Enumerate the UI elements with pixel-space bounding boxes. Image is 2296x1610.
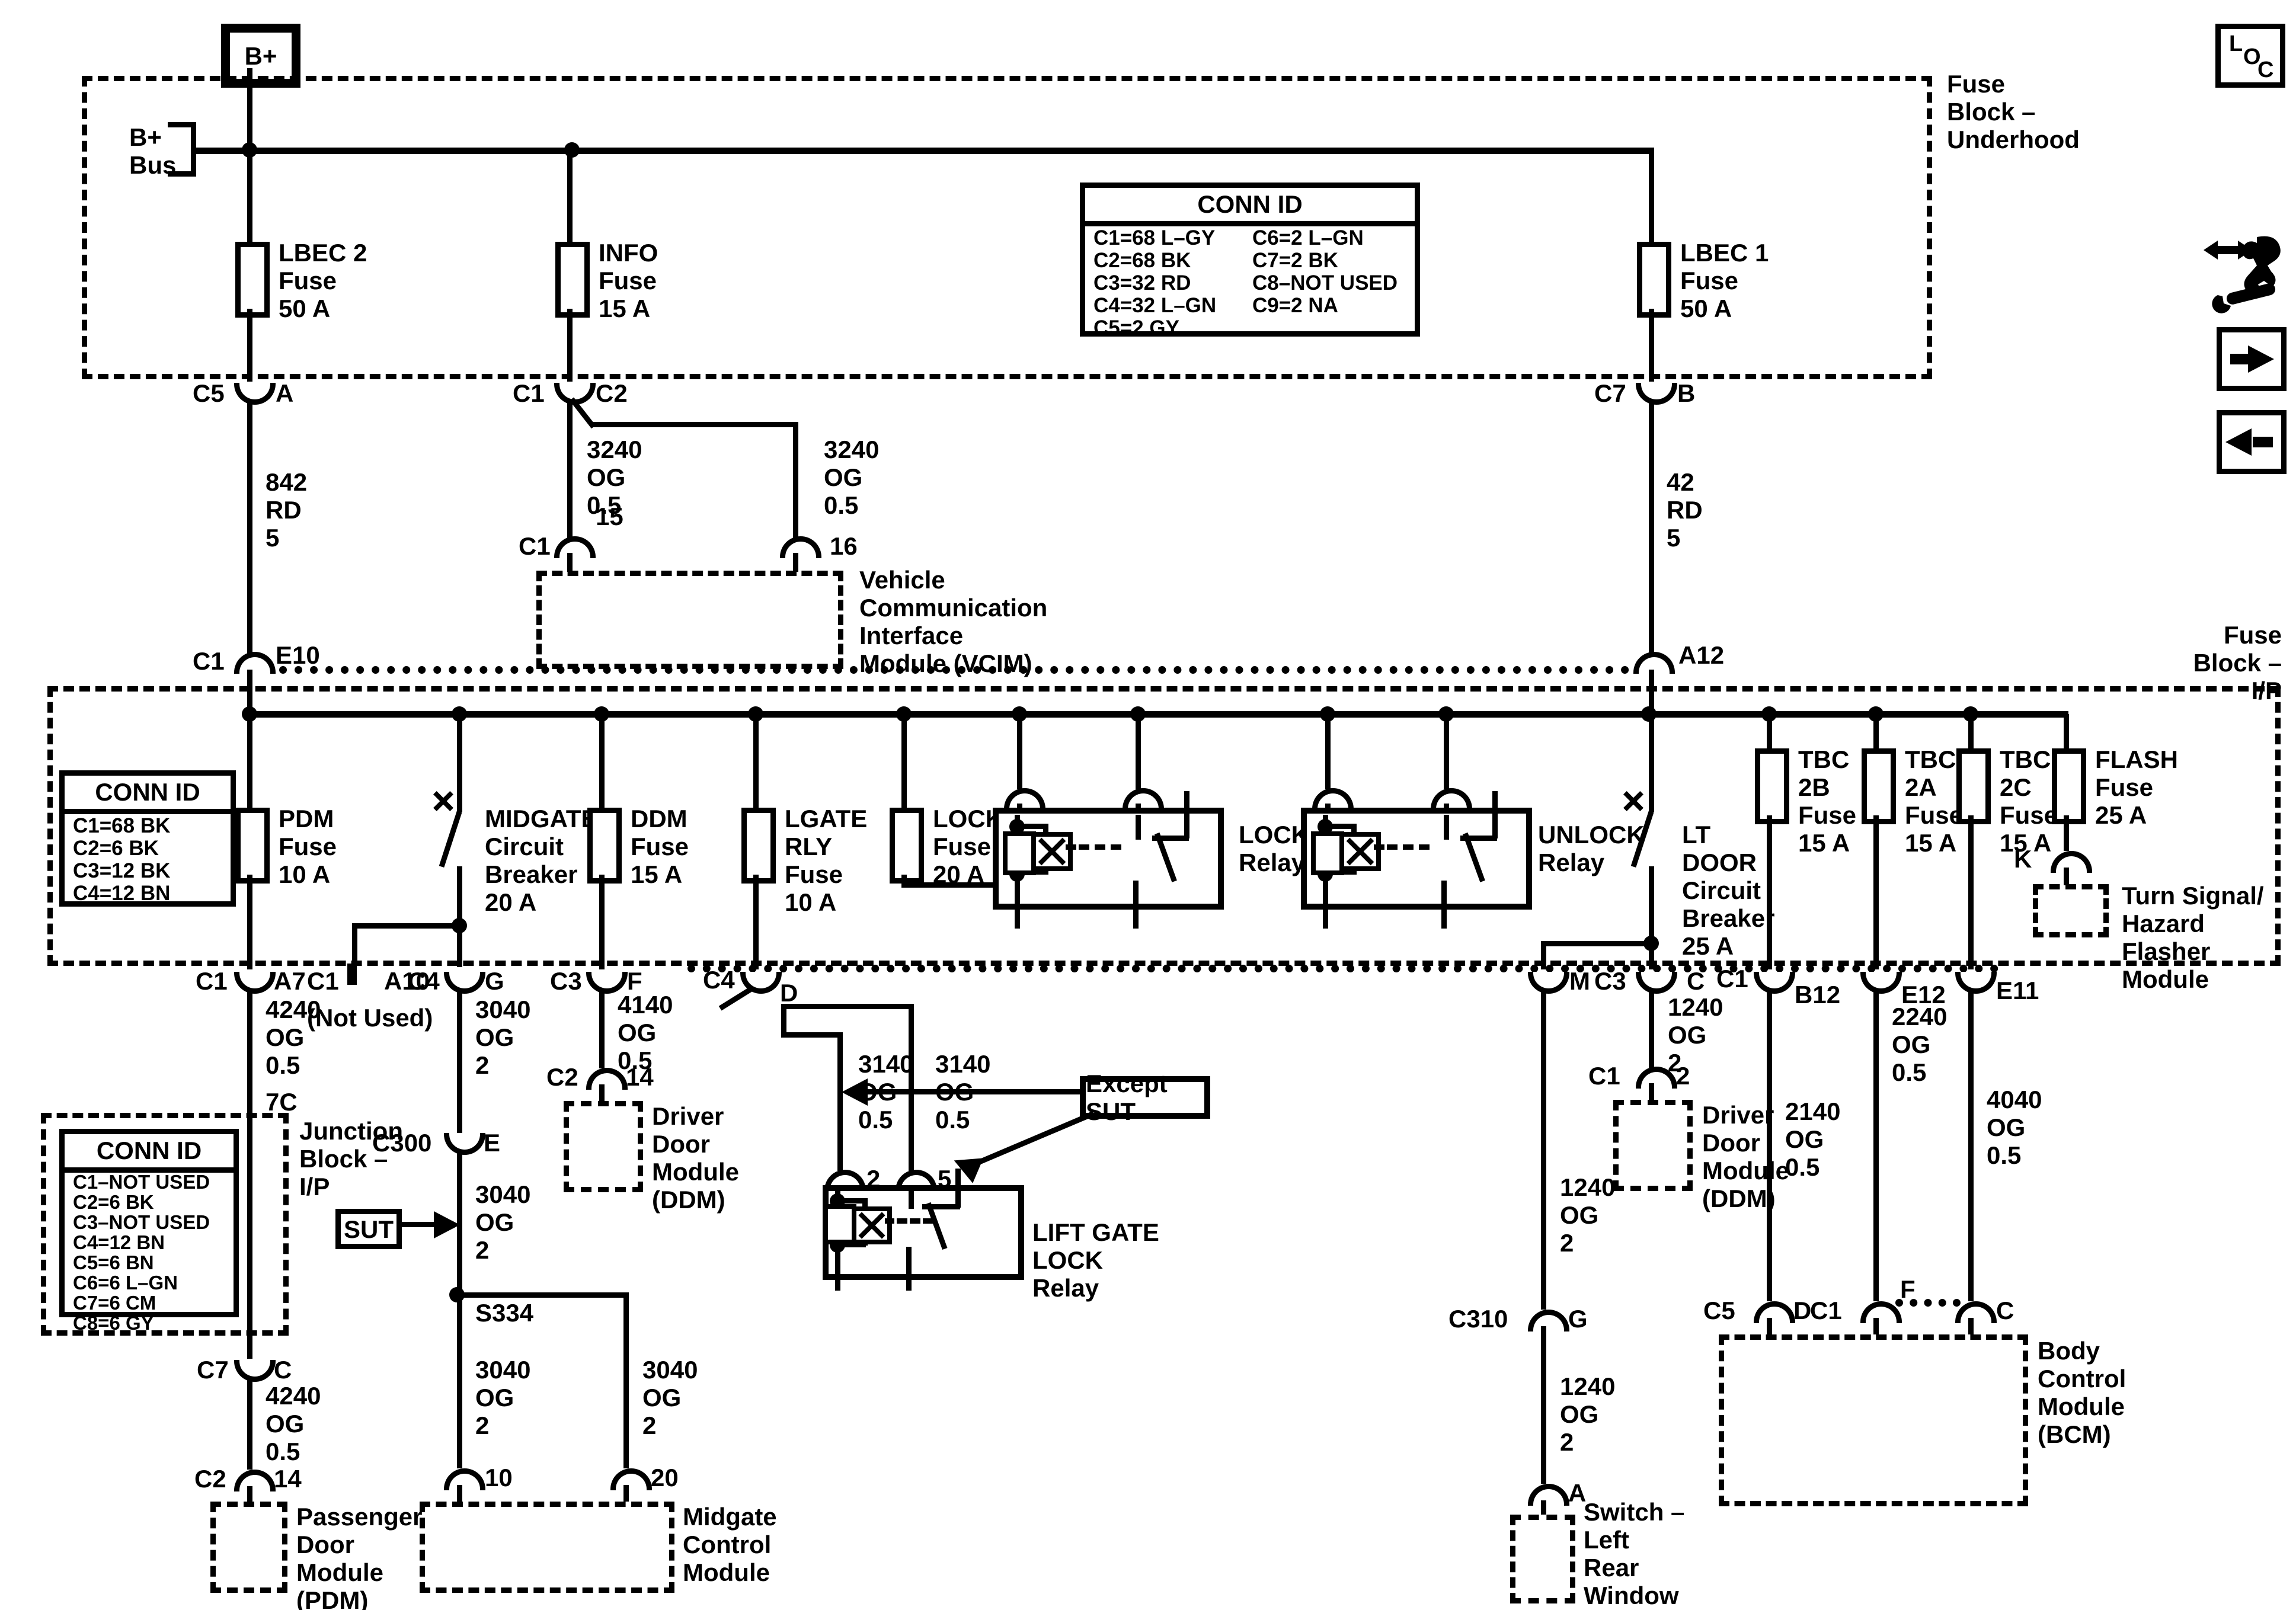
connector-label: C7 xyxy=(197,1356,229,1384)
lbec1-fuse-label: LBEC 1 Fuse 50 A xyxy=(1680,239,1769,322)
wire xyxy=(1649,988,1654,1068)
segment-label-7c: 7C xyxy=(266,1088,298,1116)
pdm-fuse-label: PDM Fuse 10 A xyxy=(279,805,337,888)
wire xyxy=(567,553,573,572)
wire xyxy=(457,1485,462,1502)
wire xyxy=(567,150,573,242)
relay-link-dashes xyxy=(1079,844,1121,850)
connector-c5-d xyxy=(1754,1301,1795,1323)
lbec2-fuse-symbol xyxy=(235,242,270,318)
conn-row: C5=2 GY xyxy=(1085,317,1216,340)
conn-row: C6=2 L–GN xyxy=(1244,227,1398,249)
connector-c3-c xyxy=(1636,972,1677,994)
lgate-fuse-label: LGATE RLY Fuse 10 A xyxy=(785,805,867,916)
wire xyxy=(1873,988,1879,1301)
bplus-bus-label: B+ Bus xyxy=(129,123,176,179)
wire xyxy=(1968,815,1974,969)
pin-label-16: 16 xyxy=(830,532,858,560)
wire xyxy=(1460,836,1497,841)
connector-c1-a7 xyxy=(234,972,276,994)
wire xyxy=(1374,844,1384,850)
wire xyxy=(1133,881,1139,904)
wire xyxy=(1968,714,1974,750)
connector-label: C5 xyxy=(1703,1297,1735,1324)
wire xyxy=(2064,714,2069,750)
wire xyxy=(1649,670,1654,812)
wire xyxy=(793,422,798,539)
wire xyxy=(1649,309,1654,382)
wire xyxy=(599,988,605,1068)
wire xyxy=(1136,714,1141,789)
conn-row: C2=6 BK xyxy=(65,837,170,860)
wire xyxy=(901,714,907,809)
wire xyxy=(1541,988,1546,1310)
wire xyxy=(1649,150,1654,242)
wire-label-1240a: 1240 OG 2 xyxy=(1560,1173,1615,1257)
conn-id-table-ip: CONN ID C1=68 BK C2=6 BK C3=12 BK C4=12 … xyxy=(59,770,236,907)
previous-page-button[interactable] xyxy=(2217,410,2287,474)
wire xyxy=(1492,791,1498,838)
wire-label-3040a: 3040 OG 2 xyxy=(475,996,530,1079)
connector-label: C2 xyxy=(546,1063,578,1091)
connector-label: E xyxy=(484,1129,500,1157)
arrow-shaft xyxy=(2253,437,2273,447)
conn-row: C2=68 BK xyxy=(1085,249,1216,272)
connector-label: C3 xyxy=(550,967,582,995)
connector-label: C300 xyxy=(372,1129,431,1157)
connector-e12 xyxy=(1860,972,1902,994)
wire-label-1240b: 1240 OG 2 xyxy=(1560,1372,1615,1456)
conn-id-title: CONN ID xyxy=(65,1134,234,1173)
connector-vcim-15 xyxy=(554,536,596,558)
conn-id-title: CONN ID xyxy=(65,776,231,814)
conn-row: C7=2 BK xyxy=(1244,249,1398,272)
wire-label-3240-right: 3240 OG 0.5 xyxy=(824,436,879,519)
tbc2a-fuse-symbol xyxy=(1862,748,1896,824)
ddm-right-module-label: Driver Door Module (DDM) xyxy=(1702,1101,1789,1212)
connector-c xyxy=(1955,1301,1997,1323)
pdm-module-box xyxy=(210,1502,287,1593)
tbc2b-fuse-label: TBC 2B Fuse 15 A xyxy=(1798,745,1856,857)
wire xyxy=(352,923,462,929)
conn-row: C3–NOT USED xyxy=(65,1212,210,1233)
wire xyxy=(1541,941,1651,946)
wire xyxy=(591,422,798,427)
junction-dot xyxy=(242,706,257,722)
ip-bus-wire xyxy=(250,711,2068,718)
wire xyxy=(781,1004,914,1009)
conn-row: C7=6 CM xyxy=(65,1293,210,1313)
next-page-button[interactable] xyxy=(2217,327,2287,391)
wire xyxy=(1441,904,1447,929)
conn-row: C2=6 BK xyxy=(65,1192,210,1212)
connector-label: C1 xyxy=(1588,1062,1620,1090)
wire xyxy=(1649,1083,1654,1100)
relay-coil-icon xyxy=(1339,832,1381,871)
conn-row: C4=12 BN xyxy=(65,882,170,905)
conn-row: C3=12 BK xyxy=(65,860,170,882)
wire xyxy=(753,875,759,969)
wire xyxy=(1968,988,1974,1301)
right-arrow-icon xyxy=(2248,345,2274,373)
wire xyxy=(906,1247,912,1268)
wire xyxy=(909,1191,914,1209)
info-fuse-symbol xyxy=(555,242,590,318)
wire xyxy=(1015,904,1020,929)
junction-dot xyxy=(1641,706,1657,722)
connector-label: C xyxy=(274,1356,292,1384)
wire xyxy=(1136,815,1141,840)
connector-label: C xyxy=(1687,967,1705,995)
wire xyxy=(753,714,759,809)
conn-id-title: CONN ID xyxy=(1085,188,1415,226)
connector-a10-stub xyxy=(347,964,357,985)
tbc2c-fuse-symbol xyxy=(1956,748,1991,824)
sut-arrow-shaft xyxy=(402,1222,437,1227)
wire xyxy=(457,1295,462,1468)
tbc2a-fuse-label: TBC 2A Fuse 15 A xyxy=(1905,745,1963,857)
vcim-module-box xyxy=(536,571,843,669)
wire xyxy=(835,1268,840,1291)
wire xyxy=(1017,714,1022,789)
wire xyxy=(1873,1318,1879,1334)
wire xyxy=(599,875,605,969)
left-arrow-icon xyxy=(2225,428,2252,456)
conn-row: C4=12 BN xyxy=(65,1233,210,1253)
connector-label: D xyxy=(1793,1297,1811,1324)
wire xyxy=(1152,836,1189,841)
conn-row: C8–NOT USED xyxy=(1244,272,1398,295)
connector-20 xyxy=(610,1468,652,1490)
wire xyxy=(1767,988,1772,1301)
pin-label-15: 15 xyxy=(596,502,623,530)
info-fuse-label: INFO Fuse 15 A xyxy=(599,239,658,322)
ddm-left-module-box xyxy=(564,1101,643,1192)
wire xyxy=(1649,402,1654,654)
connector-label: C1 xyxy=(196,967,228,995)
fuse-block-underhood-label: Fuse Block – Underhood xyxy=(1947,70,2080,153)
connector-c1-e10 xyxy=(234,652,276,674)
wire xyxy=(885,1218,894,1224)
wire xyxy=(2064,868,2069,885)
midgate-module-box xyxy=(420,1502,674,1593)
wire xyxy=(457,926,462,967)
wire-label-3040d: 3040 OG 2 xyxy=(642,1356,698,1439)
connector-c4-g xyxy=(444,972,485,994)
connector-label: M xyxy=(1569,967,1590,995)
bplus-bus-wire xyxy=(195,148,1654,154)
connector-label: E11 xyxy=(1996,977,2039,1004)
connector-c7-b xyxy=(1636,383,1677,405)
connector-line xyxy=(687,965,1998,972)
vcim-module-label: Vehicle Communication Interface Module (… xyxy=(859,566,1047,677)
wire xyxy=(247,309,252,382)
wire-label-842: 842 RD 5 xyxy=(266,468,307,552)
arrow-shaft xyxy=(2230,354,2250,364)
wire xyxy=(781,1032,842,1038)
connector-label: C4 xyxy=(408,967,440,995)
sut-label: SUT xyxy=(344,1215,394,1243)
wire-label-4240: 4240 OG 0.5 xyxy=(266,996,321,1079)
connector-label: C3 xyxy=(1594,967,1626,995)
flash-fuse-label: FLASH Fuse 25 A xyxy=(2095,745,2178,829)
pin-label: 14 xyxy=(274,1465,302,1493)
wire xyxy=(599,1084,605,1101)
loc-button[interactable]: L O C xyxy=(2215,24,2285,88)
locks-fuse-symbol xyxy=(890,808,924,884)
connector-label: C1 xyxy=(1716,965,1748,993)
conn-row: C9=2 NA xyxy=(1244,295,1398,317)
pin-label: 14 xyxy=(626,1063,654,1091)
connector-10 xyxy=(444,1468,485,1490)
wire xyxy=(1873,815,1879,969)
conn-id-table-junction: CONN ID C1–NOT USED C2=6 BK C3–NOT USED … xyxy=(59,1129,239,1317)
loc-letter-c: C xyxy=(2257,56,2273,84)
connector-label: C1 xyxy=(1810,1297,1842,1324)
connector-label: C5 xyxy=(193,379,225,407)
wire xyxy=(1441,881,1447,904)
connector-label: A7 xyxy=(274,967,306,995)
connector-label: C7 xyxy=(1594,379,1626,407)
ltdoor-breaker-label: LT DOOR Circuit Breaker 25 A xyxy=(1682,821,1774,960)
except-sut-arrow-shaft xyxy=(866,1089,1080,1094)
lbec2-fuse-label: LBEC 2 Fuse 50 A xyxy=(279,239,367,322)
lgate-fuse-symbol xyxy=(741,808,776,884)
connector-label: D xyxy=(780,979,798,1007)
connector-c5-a xyxy=(234,383,276,405)
wire xyxy=(901,882,995,888)
wire xyxy=(1541,1326,1546,1484)
flasher-module-label: Turn Signal/ Hazard Flasher Module xyxy=(2122,882,2296,993)
relay-link-dashes xyxy=(1387,844,1430,850)
wire xyxy=(623,1292,629,1468)
junction-dot xyxy=(242,142,257,158)
conn-row: C5=6 BN xyxy=(65,1253,210,1273)
wire xyxy=(247,402,252,654)
lock-relay-label: LOCK Relay xyxy=(1239,821,1309,876)
bplus-label: B+ xyxy=(245,42,277,70)
connector-label: C2 xyxy=(596,379,628,407)
connector-label: C1 xyxy=(193,647,225,675)
connector-c7-c xyxy=(234,1360,276,1382)
wire xyxy=(1444,714,1449,789)
conn-row: C6=6 L–GN xyxy=(65,1273,210,1293)
wire xyxy=(352,923,357,966)
connector-c300-e xyxy=(444,1133,485,1155)
s334-label: S334 xyxy=(475,1299,533,1327)
tbc2c-fuse-label: TBC 2C Fuse 15 A xyxy=(2000,745,2058,857)
wire-label-2240: 2240 OG 0.5 xyxy=(1892,1003,1947,1086)
relay-coil-icon xyxy=(852,1206,892,1244)
conn-row: C1=68 L–GY xyxy=(1085,227,1216,249)
connector-label: G xyxy=(1568,1305,1588,1333)
except-sut-arrow-head xyxy=(842,1078,868,1106)
sut-callout-box: SUT xyxy=(335,1209,402,1249)
connector-a12 xyxy=(1633,652,1675,674)
conn-row: C4=32 L–GN xyxy=(1085,295,1216,317)
lrw-switch-box xyxy=(1510,1515,1575,1603)
wire xyxy=(457,988,462,1133)
connector-vcim-16 xyxy=(780,536,821,558)
wire-label-4040: 4040 OG 0.5 xyxy=(1987,1086,2042,1169)
connector-c310-g xyxy=(1528,1310,1569,1331)
wire xyxy=(837,1198,866,1204)
connector-label: A12 xyxy=(1678,641,1724,669)
connector-e11 xyxy=(1955,972,1997,994)
connector-c1-b12 xyxy=(1754,972,1795,994)
wire xyxy=(457,1292,629,1298)
wire xyxy=(1325,714,1331,789)
wire xyxy=(781,1004,786,1036)
midgate-breaker-label: MIDGATE Circuit Breaker 20 A xyxy=(485,805,598,916)
connector-label: B xyxy=(1677,379,1695,407)
wire xyxy=(1649,866,1654,945)
unlock-relay-label: UNLOCK Relay xyxy=(1538,821,1645,876)
except-sut-arrow-shaft xyxy=(977,1111,1095,1165)
connector-line xyxy=(1895,1299,1961,1307)
wiring-diagram-canvas: B+ Fuse Block – Underhood B+ Bus LBEC 2 … xyxy=(0,0,2296,1610)
wire xyxy=(247,670,252,812)
except-sut-callout-box: Except SUT xyxy=(1080,1076,1210,1119)
wire-label-3040b: 3040 OG 2 xyxy=(475,1180,530,1264)
wire xyxy=(247,875,252,969)
bus-bracket-bottom xyxy=(168,171,196,177)
relay-link-dashes xyxy=(897,1218,933,1224)
wire xyxy=(1873,714,1879,750)
wire xyxy=(457,714,462,812)
pdm-module-label: Passenger Door Module (PDM) xyxy=(296,1503,422,1610)
connector-label: E10 xyxy=(276,641,320,669)
wire-label-42: 42 RD 5 xyxy=(1667,468,1703,552)
connector-line xyxy=(264,666,1645,674)
wire xyxy=(1323,904,1328,929)
relay-coil-icon xyxy=(1031,832,1073,871)
connector-m xyxy=(1528,972,1569,994)
connector-label: A xyxy=(276,379,293,407)
connector-label: C4 xyxy=(703,966,735,994)
conn-row: C1=68 BK xyxy=(65,815,170,837)
wire-label-4140: 4140 OG 0.5 xyxy=(618,991,673,1074)
pin-label: 10 xyxy=(485,1464,513,1491)
tbc2b-fuse-symbol xyxy=(1755,748,1789,824)
wire xyxy=(247,1377,252,1470)
lbec1-fuse-symbol xyxy=(1637,242,1671,318)
loc-letter-l: L xyxy=(2229,30,2243,58)
bcm-module-box xyxy=(1719,1334,2028,1506)
sut-arrow-head xyxy=(434,1211,460,1238)
conn-row: C8=6 GY xyxy=(65,1313,210,1333)
conn-id-table-underhood: CONN ID C1=68 L–GY C2=68 BK C3=32 RD C4=… xyxy=(1080,183,1420,337)
connector-label: C1 xyxy=(513,379,545,407)
wire xyxy=(1767,1318,1772,1334)
wire xyxy=(567,402,573,539)
wire xyxy=(906,1268,912,1291)
wire xyxy=(1541,1500,1546,1515)
wire-label-4240b: 4240 OG 0.5 xyxy=(266,1382,321,1465)
wire-label-2140: 2140 OG 0.5 xyxy=(1785,1097,1840,1181)
liftgate-relay-label: LIFT GATE LOCK Relay xyxy=(1032,1218,1159,1302)
connector-label: C310 xyxy=(1448,1305,1508,1333)
wire xyxy=(1444,815,1449,840)
pdm-fuse-symbol xyxy=(235,808,270,884)
wire xyxy=(1968,1318,1974,1334)
wire xyxy=(247,1486,252,1502)
wire xyxy=(623,1485,629,1502)
wire-label-3040c: 3040 OG 2 xyxy=(475,1356,530,1439)
wire xyxy=(2064,815,2069,851)
lrw-switch-label: Switch – Left Rear Window xyxy=(1584,1498,1684,1609)
wire xyxy=(1133,904,1139,929)
except-sut-label: Except SUT xyxy=(1086,1070,1204,1125)
ddm-right-module-box xyxy=(1613,1100,1693,1191)
connector-label: C2 xyxy=(194,1465,226,1493)
flasher-module-box xyxy=(2033,884,2109,937)
flash-fuse-symbol xyxy=(2052,748,2086,824)
connector-a xyxy=(1528,1484,1569,1506)
connector-label: G xyxy=(485,967,504,995)
connector-label: C1 xyxy=(307,967,339,995)
wire xyxy=(1184,791,1189,838)
conn-row: C1–NOT USED xyxy=(65,1172,210,1192)
bcm-module-label: Body Control Module (BCM) xyxy=(2038,1337,2126,1448)
connector-label: C1 xyxy=(519,532,551,560)
wire xyxy=(567,309,573,382)
connector-c2-14 xyxy=(234,1470,276,1491)
wrench-arrow-icon[interactable] xyxy=(2202,231,2291,314)
ddm-left-module-label: Driver Door Module (DDM) xyxy=(652,1102,739,1214)
wire xyxy=(1066,844,1076,850)
wire xyxy=(922,1204,960,1209)
wire xyxy=(1767,815,1772,969)
fuse-block-underhood-outline xyxy=(82,76,1932,379)
not-used-label: (Not Used) xyxy=(307,1004,433,1032)
connector-label: C xyxy=(1996,1297,2014,1324)
except-sut-arrow-head xyxy=(949,1148,983,1183)
wire xyxy=(1767,714,1772,750)
wire xyxy=(599,714,605,809)
wire xyxy=(793,553,798,572)
wire xyxy=(955,1169,961,1208)
pin-label: 2 xyxy=(1676,1062,1690,1090)
pin-label: 20 xyxy=(651,1464,679,1491)
connector-label: K xyxy=(2014,845,2032,873)
conn-row: C3=32 RD xyxy=(1085,272,1216,295)
ddm-fuse-label: DDM Fuse 15 A xyxy=(631,805,689,888)
midgate-module-label: Midgate Control Module xyxy=(683,1503,777,1586)
connector-label: B12 xyxy=(1795,981,1840,1009)
ddm-fuse-symbol xyxy=(587,808,622,884)
